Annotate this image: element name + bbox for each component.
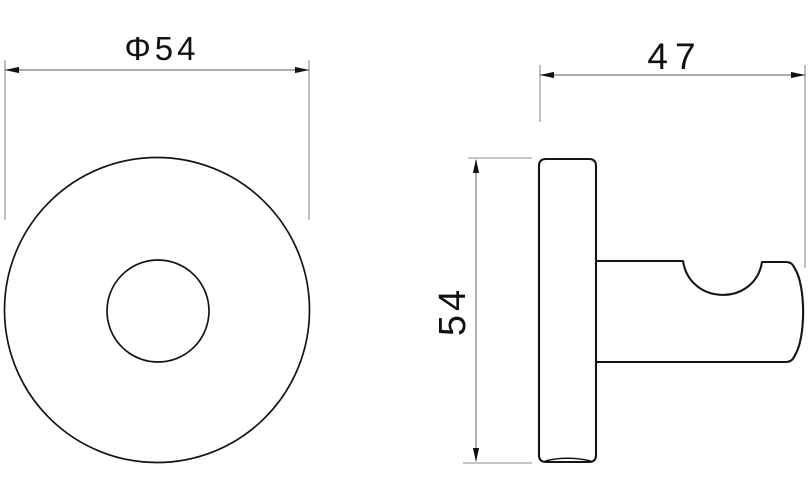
front-diameter-label: Φ54 bbox=[124, 30, 199, 67]
side-view-group: 54 47 bbox=[432, 36, 805, 463]
plate-bottom-curve bbox=[545, 458, 591, 461]
front-dim-arrow-left bbox=[5, 67, 19, 73]
height-dim-arrow-bottom bbox=[473, 448, 479, 462]
hook-arm bbox=[597, 261, 803, 362]
depth-dim-arrow-right bbox=[791, 72, 805, 78]
front-view-group: Φ54 bbox=[5, 30, 310, 463]
wall-plate bbox=[539, 159, 596, 462]
height-dim-arrow-top bbox=[473, 159, 479, 173]
side-depth-label: 47 bbox=[647, 36, 702, 77]
depth-dim-arrow-left bbox=[540, 72, 554, 78]
side-height-label: 54 bbox=[432, 286, 474, 336]
drawing-svg: Φ54 54 47 bbox=[0, 0, 810, 500]
front-dim-arrow-right bbox=[295, 67, 309, 73]
technical-drawing-canvas: Φ54 54 47 bbox=[0, 0, 810, 500]
outer-circle bbox=[5, 158, 310, 463]
inner-circle bbox=[107, 260, 209, 362]
